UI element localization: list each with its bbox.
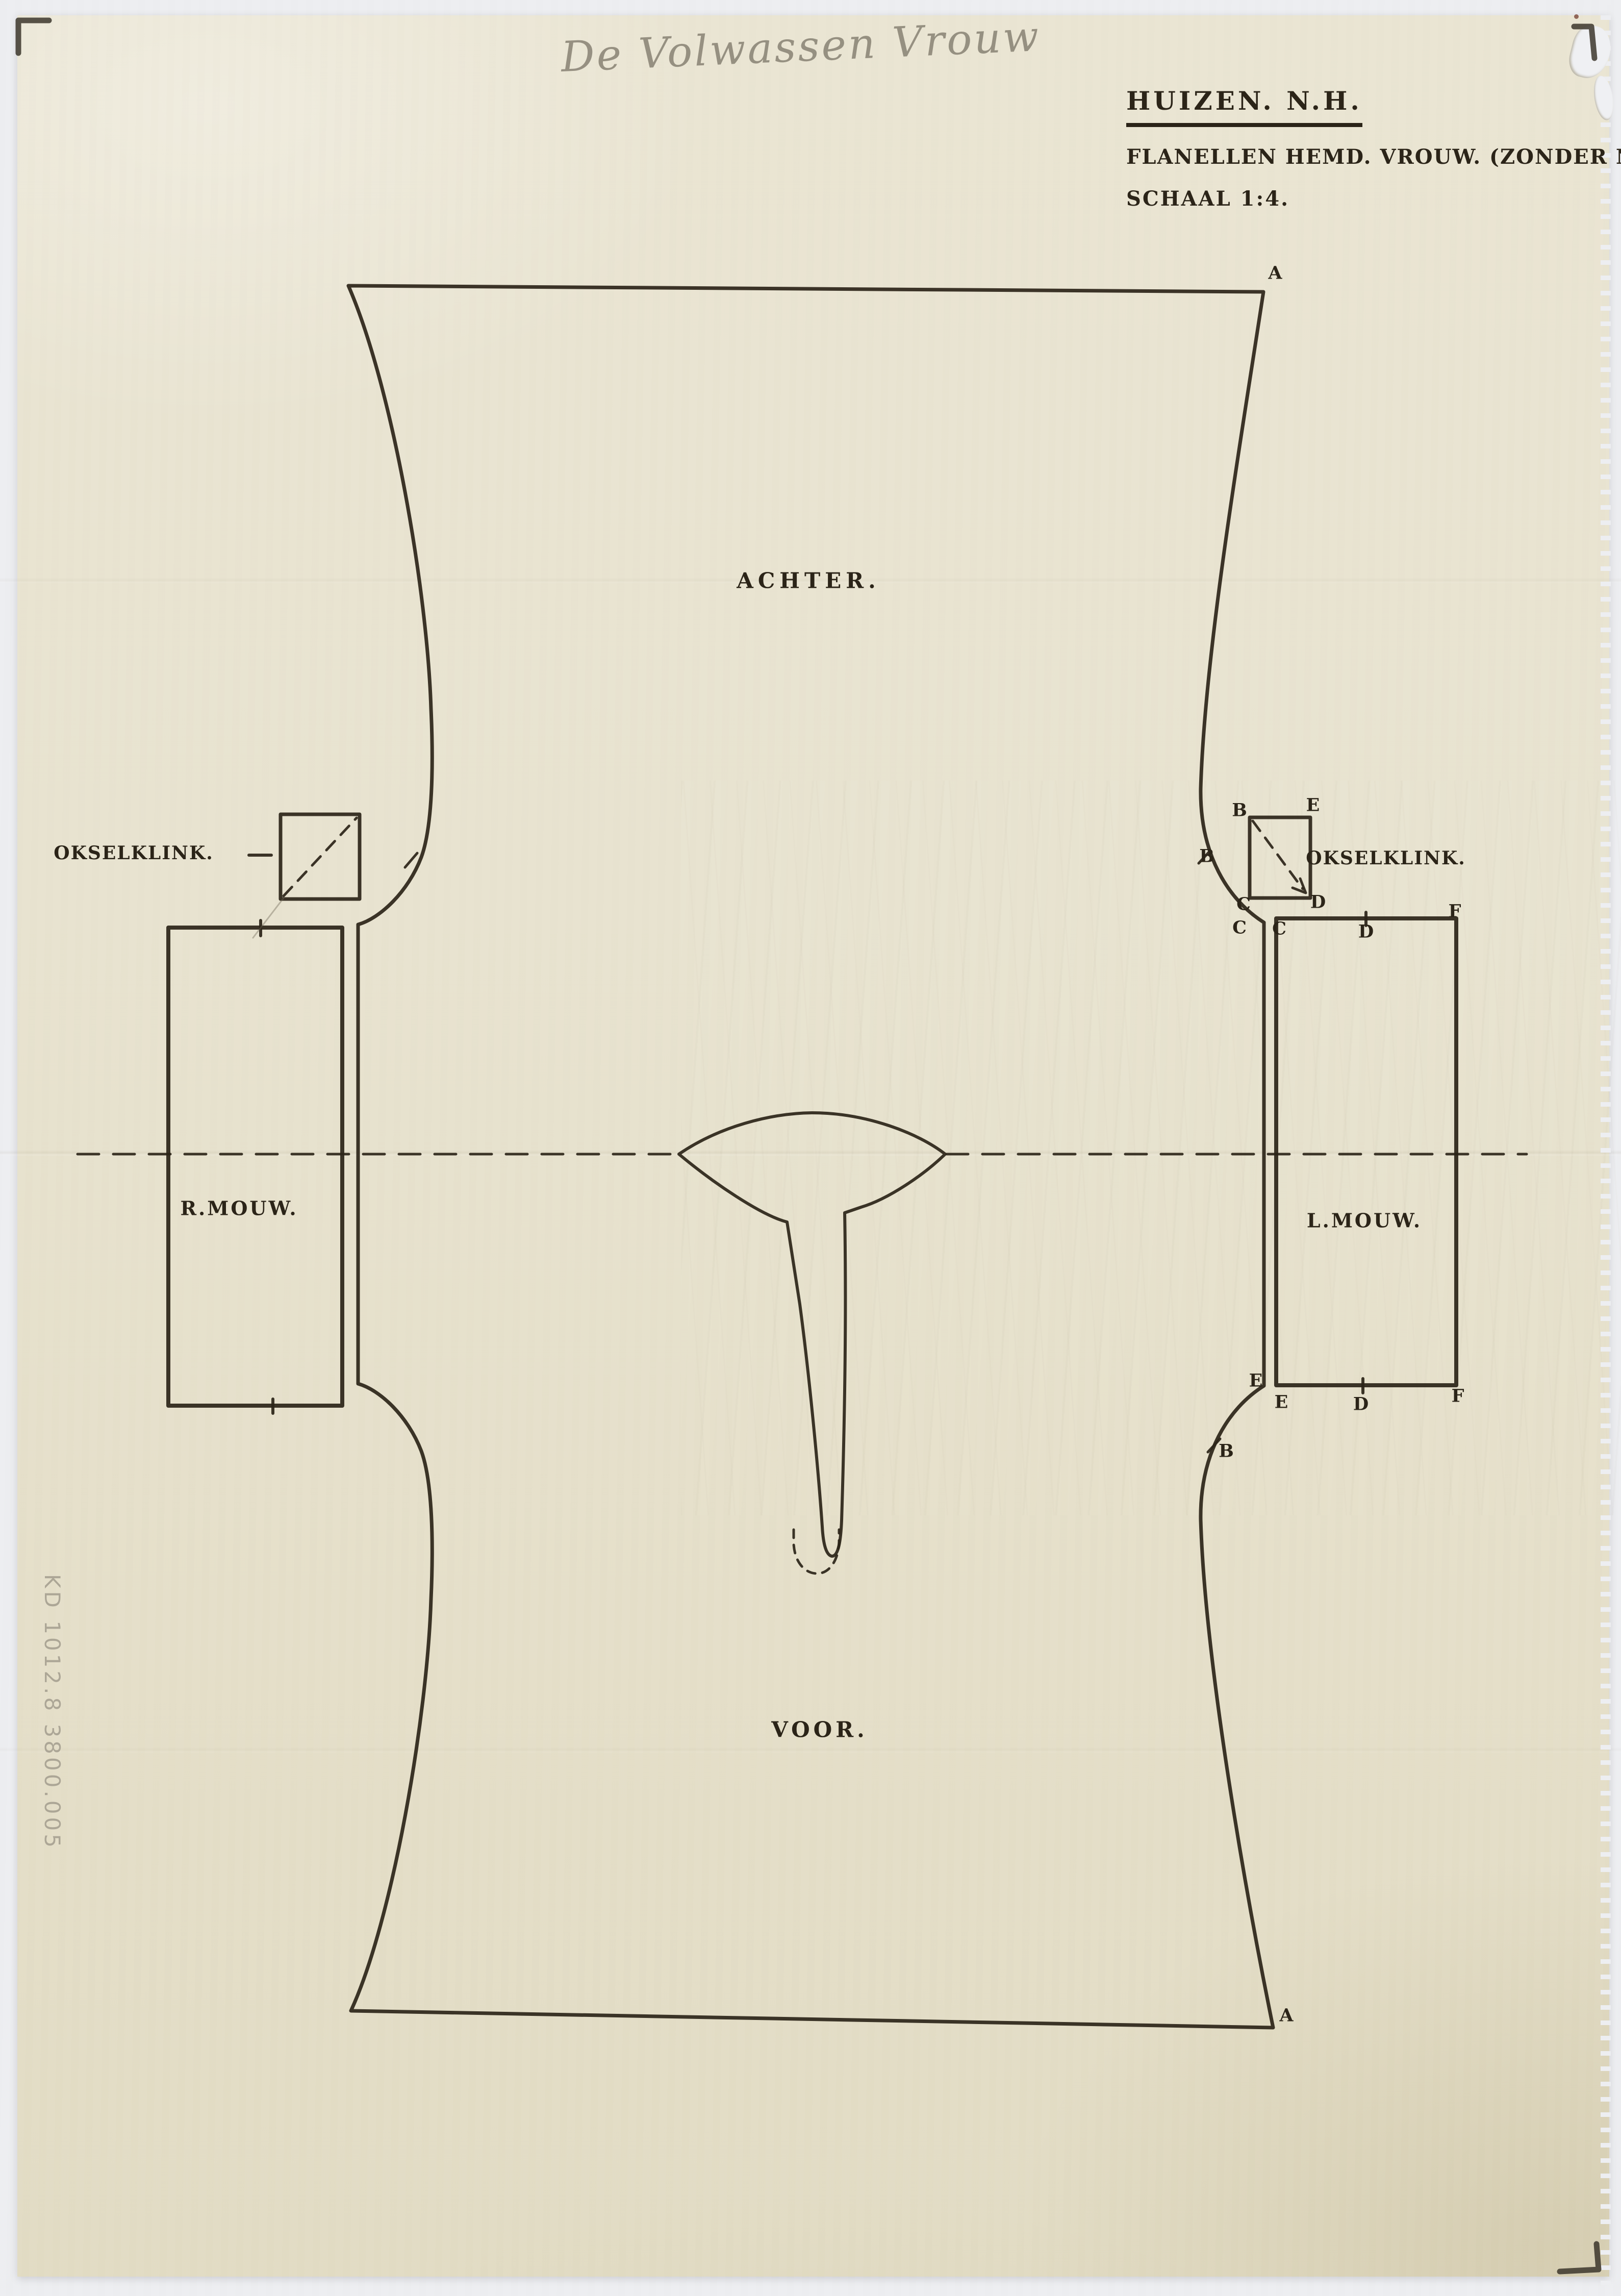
point-sleeve-d-top: D — [1358, 921, 1374, 942]
title-scale: SCHAAL 1:4. — [1126, 187, 1289, 211]
point-gusset-b: B — [1232, 800, 1247, 821]
gusset-diagonal-arrowhead — [1293, 879, 1306, 893]
point-gusset-e: E — [1306, 795, 1320, 816]
title-location: HUIZEN. N.H. — [1126, 86, 1362, 127]
armhole-ticks — [405, 851, 1220, 1452]
point-sleeve-d-bottom: D — [1353, 1394, 1369, 1415]
point-seam-c: C — [1232, 917, 1247, 938]
left-sleeve-rect — [1276, 918, 1456, 1385]
point-sleeve-f-top: F — [1449, 901, 1461, 922]
title-description: FLANELLEN HEMD. VROUW. (ZONDER NADEN). — [1126, 145, 1621, 169]
pencil-construction-line — [253, 898, 284, 938]
point-gusset-d: D — [1310, 892, 1326, 913]
label-left-sleeve: L.MOUW. — [1307, 1209, 1422, 1232]
gusset-diagonal-right — [1253, 821, 1303, 889]
inventory-number: KD 1012.8 3800.005 — [40, 1574, 65, 1851]
right-sleeve-rect — [168, 928, 342, 1406]
label-gusset-left: OKSELKLINK. — [54, 842, 214, 864]
notch-ticks — [261, 912, 1366, 1413]
corner-mark-bottom-right — [1560, 2244, 1599, 2272]
slit-reinforcement-dashed — [794, 1530, 839, 1574]
corner-mark-top-left — [18, 20, 49, 53]
pattern-drawing — [0, 0, 1621, 2296]
point-b-armhole-bottom: B — [1219, 1441, 1234, 1462]
label-gusset-right: OKSELKLINK. — [1306, 847, 1466, 869]
point-gusset-c: C — [1236, 894, 1251, 915]
neck-opening — [679, 1113, 945, 1556]
point-a-top: A — [1268, 263, 1282, 284]
label-back-panel: ACHTER. — [737, 568, 880, 593]
scanned-pattern-sheet: HUIZEN. N.H. FLANELLEN HEMD. VROUW. (ZON… — [0, 0, 1621, 2296]
point-b-armhole-top: B — [1199, 846, 1214, 867]
point-sleeve-c: C — [1272, 918, 1286, 939]
point-sleeve-e: E — [1275, 1392, 1288, 1413]
label-right-sleeve: R.MOUW. — [180, 1197, 298, 1220]
point-a-bottom: A — [1279, 2005, 1293, 2026]
corner-mark-top-right — [1574, 27, 1594, 58]
label-front-panel: VOOR. — [771, 1717, 868, 1742]
gusset-diagonal-left — [284, 818, 357, 896]
point-sleeve-f-bottom: F — [1452, 1386, 1464, 1407]
garment-outline — [348, 286, 1273, 2028]
point-seam-e: E — [1249, 1370, 1263, 1391]
